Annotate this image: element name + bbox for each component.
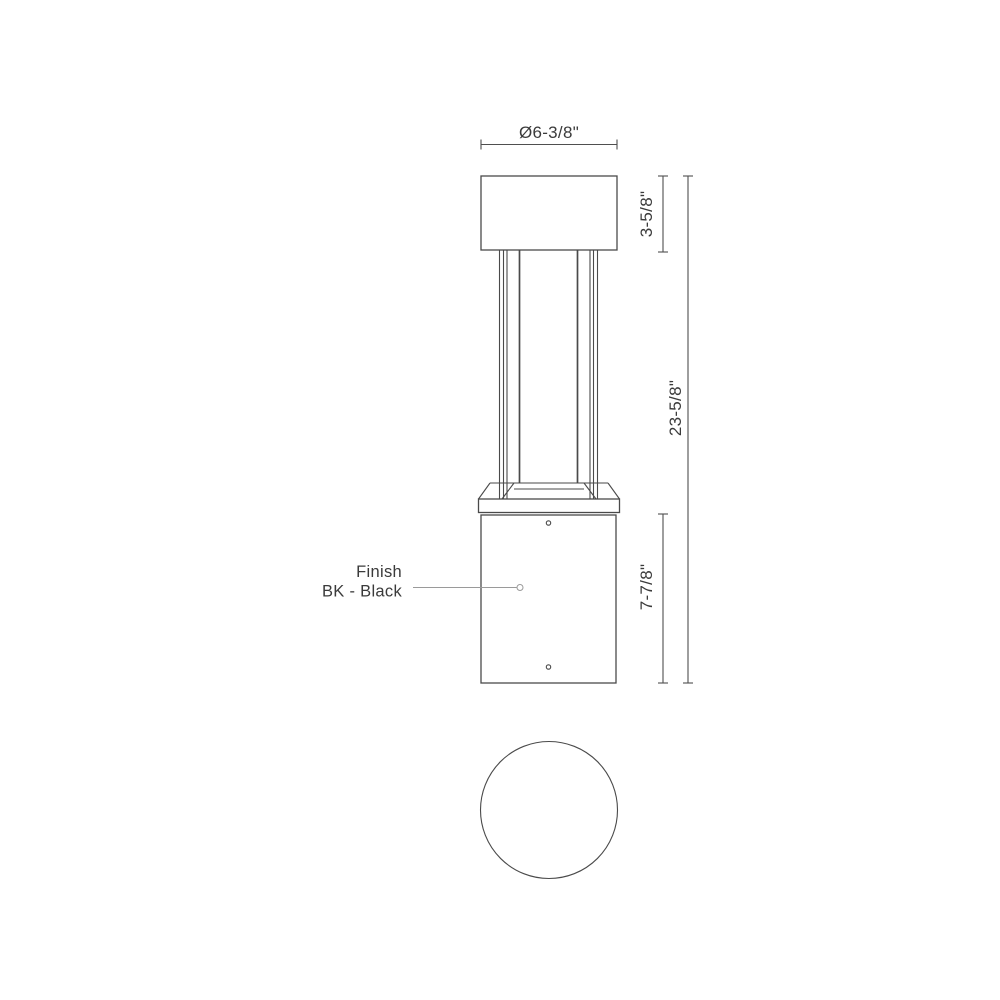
dimension-lines: [481, 140, 693, 684]
dim-cap-height-label: 3-5/8": [637, 191, 656, 238]
front-elevation-view: [479, 176, 620, 683]
base-band: [479, 499, 620, 513]
finish-leader-endpoint: [517, 585, 523, 591]
dim-base-height-line: [658, 514, 668, 683]
screw-dot-top: [546, 521, 550, 525]
dim-cap-height-line: [658, 176, 668, 252]
finish-label-line2: BK - Black: [322, 583, 402, 601]
lamp-head-cap: [481, 176, 617, 250]
right-post-lines: [578, 250, 598, 499]
plan-view: [481, 742, 618, 879]
dim-base-height-label: 7-7/8": [637, 564, 656, 611]
plan-view-circle: [481, 742, 618, 879]
finish-leader: [413, 585, 523, 591]
left-post-lines: [500, 250, 520, 499]
base-body: [481, 515, 616, 683]
technical-drawing-page: Ø6-3/8" 3-5/8" 23-5/8" 7-7/8" Finish BK …: [0, 0, 1000, 1000]
screw-dot-bottom: [546, 665, 550, 669]
finish-label-line1: Finish: [356, 563, 402, 581]
bollard-technical-drawing: Ø6-3/8" 3-5/8" 23-5/8" 7-7/8" Finish BK …: [0, 0, 1000, 1000]
dim-diameter-label: Ø6-3/8": [519, 123, 579, 142]
dim-overall-height-label: 23-5/8": [666, 380, 685, 436]
